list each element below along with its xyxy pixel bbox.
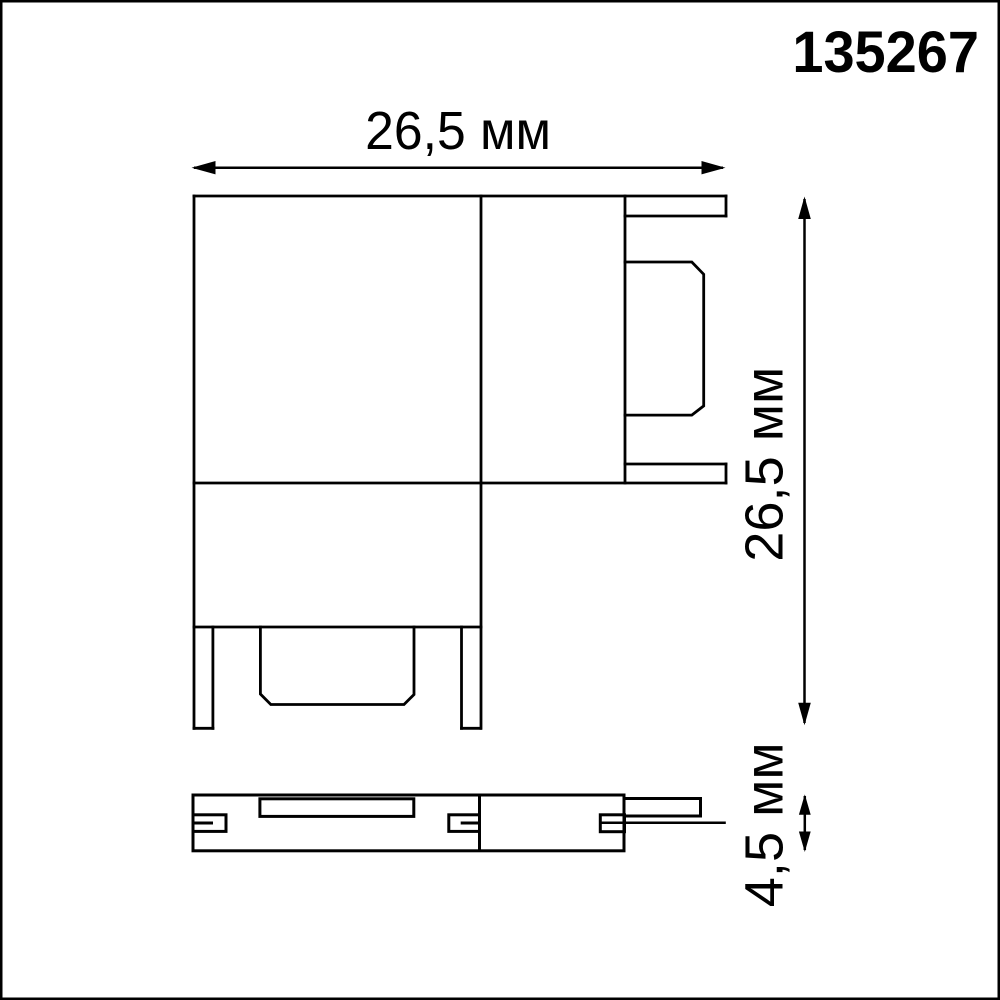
svg-text:26,5 мм: 26,5 мм <box>735 367 795 562</box>
svg-text:4,5 мм: 4,5 мм <box>735 742 795 907</box>
svg-text:135267: 135267 <box>792 20 979 86</box>
svg-text:26,5 мм: 26,5 мм <box>365 101 551 161</box>
